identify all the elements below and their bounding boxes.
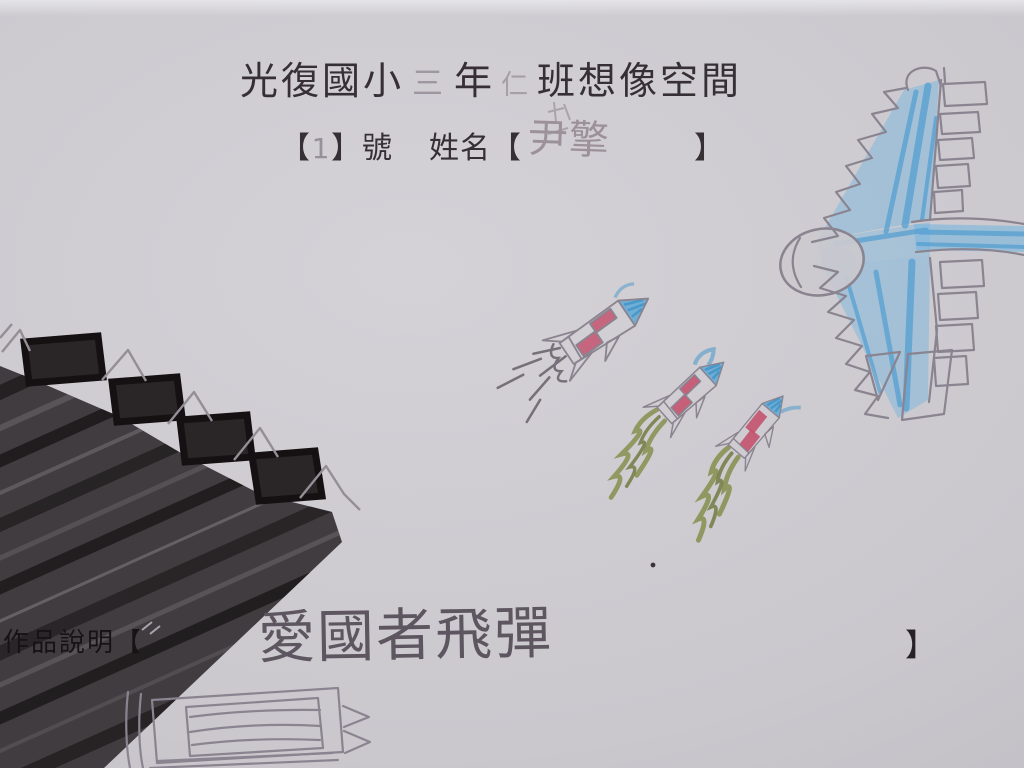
year-label: 年 [454, 61, 495, 103]
description-bracket-close: 】 [905, 620, 936, 665]
missile-launcher-drawing [126, 688, 370, 768]
grade-handwritten: 三 [412, 66, 446, 102]
number-name-line: 【1】號姓名【尹擎】 [280, 112, 725, 170]
worksheet-title: 光復國小三年仁班想像空間 [240, 50, 742, 105]
number-bracket-open: 【 [280, 132, 311, 165]
student-name-handwritten: 尹擎 [527, 106, 611, 167]
student-number-handwritten: 1 [311, 132, 331, 165]
name-bracket-open: 【 [491, 132, 522, 165]
name-label: 姓名 [429, 132, 491, 165]
description-label: 作品說明【 [3, 622, 143, 659]
title-suffix: 班想像空間 [537, 61, 742, 103]
number-bracket-close: 】 [331, 132, 362, 165]
airplane-drawing [774, 68, 1024, 420]
name-bracket-close: 】 [694, 132, 725, 165]
artwork-caption-handwritten: 愛國者飛彈 [257, 587, 553, 674]
castle-wall-drawing [0, 200, 430, 768]
photo-of-drawing-worksheet: 光復國小三年仁班想像空間 【1】號姓名【尹擎】 愛國者飛彈 作品說明【 】 [0, 0, 1024, 768]
missile-drawing-1 [490, 278, 668, 424]
class-handwritten: 仁 [501, 70, 531, 101]
school-name: 光復國小 [240, 61, 404, 103]
number-label: 號 [362, 132, 393, 165]
